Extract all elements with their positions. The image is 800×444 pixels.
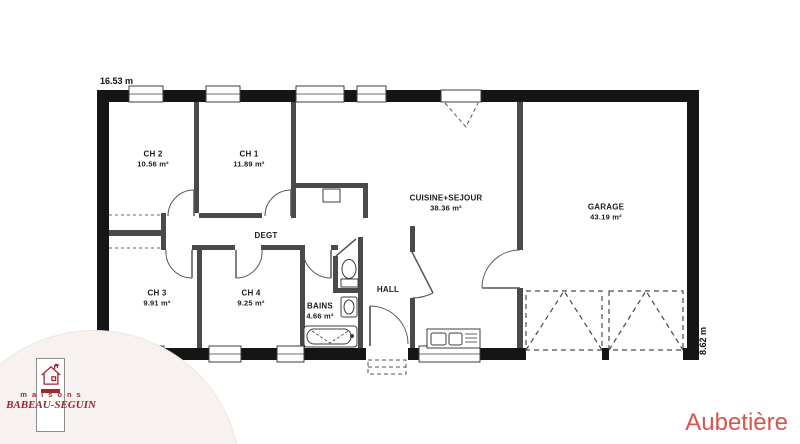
room-label-degt: DEGT <box>254 231 277 241</box>
floor-plan-page: CH 2 10.56 m² CH 1 11.89 m² CUISINE+SEJO… <box>0 0 800 444</box>
room-area: 11.89 m² <box>233 159 264 168</box>
brand-name-label: BABEAU-SEGUIN <box>0 399 102 411</box>
garage-door-icon <box>526 291 602 350</box>
garage-door-icon <box>609 291 683 350</box>
kitchen-sink-icon <box>427 329 480 348</box>
room-label-ch3: CH 3 9.91 m² <box>143 288 170 307</box>
room-name: CH 4 <box>241 288 260 297</box>
room-area: 43.19 m² <box>588 212 624 221</box>
dimension-width: 16.53 m <box>100 76 133 86</box>
toilet-icon <box>341 260 358 288</box>
room-name: CH 2 <box>143 149 162 158</box>
room-name: HALL <box>377 285 399 294</box>
room-label-hall: HALL <box>377 285 399 295</box>
entrance-door-arc <box>370 306 408 344</box>
entrance-steps-icon <box>368 360 406 374</box>
room-label-ch2: CH 2 10.56 m² <box>137 149 169 168</box>
door-ch1 <box>265 190 291 216</box>
door-ch4 <box>236 250 262 278</box>
water-heater-icon <box>323 189 340 202</box>
room-name: DEGT <box>254 231 277 240</box>
door-wc <box>336 239 356 256</box>
door-garage <box>482 250 520 288</box>
door-hall-sejour <box>412 252 433 298</box>
room-label-cuisine-sejour: CUISINE+SEJOUR 38.36 m² <box>410 193 483 212</box>
room-label-ch4: CH 4 9.25 m² <box>237 288 264 307</box>
room-name: CH 1 <box>239 149 258 158</box>
room-area: 10.56 m² <box>137 159 169 168</box>
room-label-ch1: CH 1 11.89 m² <box>233 149 264 168</box>
room-name: BAINS <box>307 301 333 310</box>
door-bains <box>303 250 331 278</box>
room-area: 9.25 m² <box>237 298 264 307</box>
brand-maisons-label: maisons <box>0 390 101 399</box>
washbasin-icon <box>341 297 357 317</box>
dimension-depth: 8.62 m <box>698 327 708 355</box>
house-logo-icon <box>40 363 62 387</box>
room-name: CUISINE+SEJOUR <box>410 193 483 202</box>
garage-doors <box>526 291 683 350</box>
room-label-bains: BAINS 4.66 m² <box>306 301 333 320</box>
room-area: 9.91 m² <box>143 298 170 307</box>
room-area: 4.66 m² <box>306 311 333 320</box>
kitchen-back-door-swing <box>445 103 478 127</box>
kitchen-back-door <box>441 90 481 102</box>
door-ch3 <box>166 250 192 278</box>
room-name: CH 3 <box>147 288 166 297</box>
room-label-garage: GARAGE 43.19 m² <box>588 202 624 221</box>
door-ch2 <box>168 190 194 216</box>
room-area: 38.36 m² <box>410 203 483 212</box>
plan-title: Aubetière <box>685 409 788 437</box>
room-name: GARAGE <box>588 202 624 211</box>
bathtub-icon <box>304 326 357 347</box>
